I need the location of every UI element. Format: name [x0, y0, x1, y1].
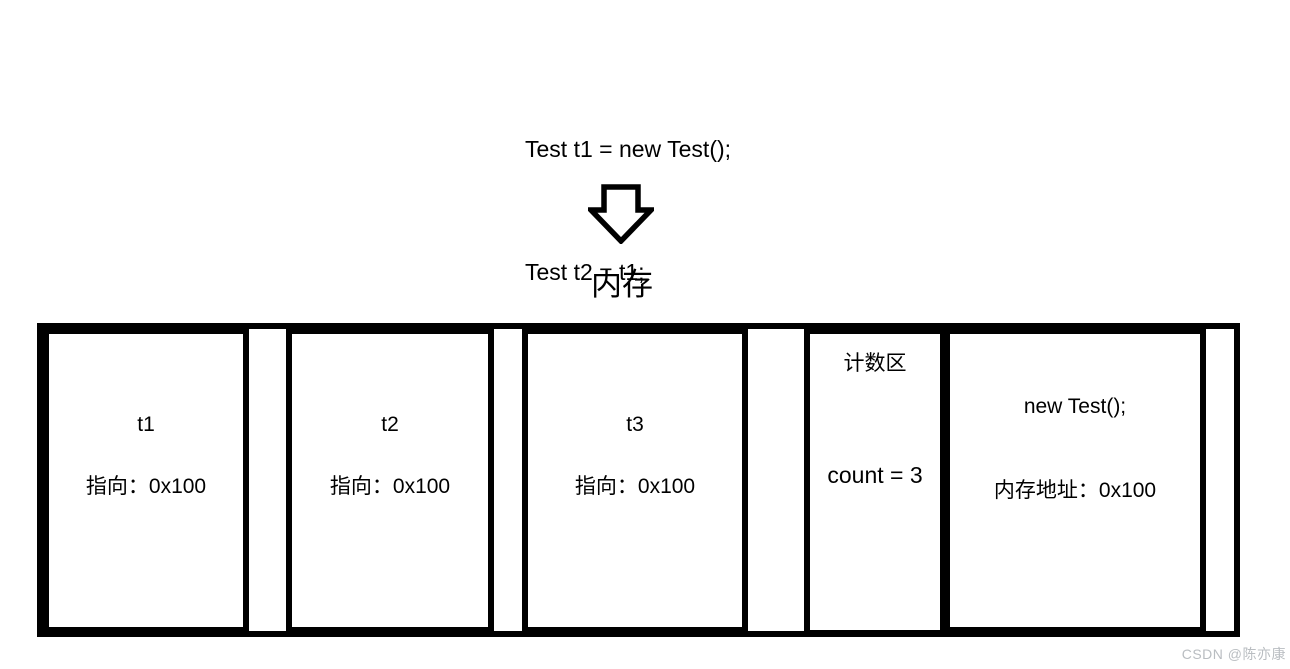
box-counter-detail: count = 3 [810, 462, 940, 488]
memory-box-t1: t1 指向：0x100 [43, 328, 249, 633]
box-t3-title: t3 [528, 412, 742, 438]
box-t3-detail: 指向：0x100 [528, 474, 742, 500]
box-t1-detail: 指向：0x100 [49, 474, 243, 500]
diagram-canvas: Test t1 = new Test(); Test t2 = t1; Test… [0, 0, 1290, 669]
down-arrow-icon [588, 184, 654, 244]
box-t1-title: t1 [49, 412, 243, 438]
memory-box-t2: t2 指向：0x100 [286, 328, 494, 633]
box-t2-title: t2 [292, 412, 488, 438]
memory-label: 内存 [522, 259, 722, 304]
box-t2-detail: 指向：0x100 [292, 474, 488, 500]
memory-box-t3: t3 指向：0x100 [522, 328, 748, 633]
box-counter-title: 计数区 [810, 351, 940, 377]
box-object-title: new Test(); [950, 394, 1200, 420]
memory-box-object: new Test(); 内存地址：0x100 [944, 328, 1206, 633]
code-line-1: Test t1 = new Test(); [525, 129, 731, 170]
csdn-watermark: CSDN @陈亦康 [1182, 644, 1286, 664]
memory-box-counter: 计数区 count = 3 [804, 328, 946, 636]
box-object-detail: 内存地址：0x100 [950, 478, 1200, 504]
